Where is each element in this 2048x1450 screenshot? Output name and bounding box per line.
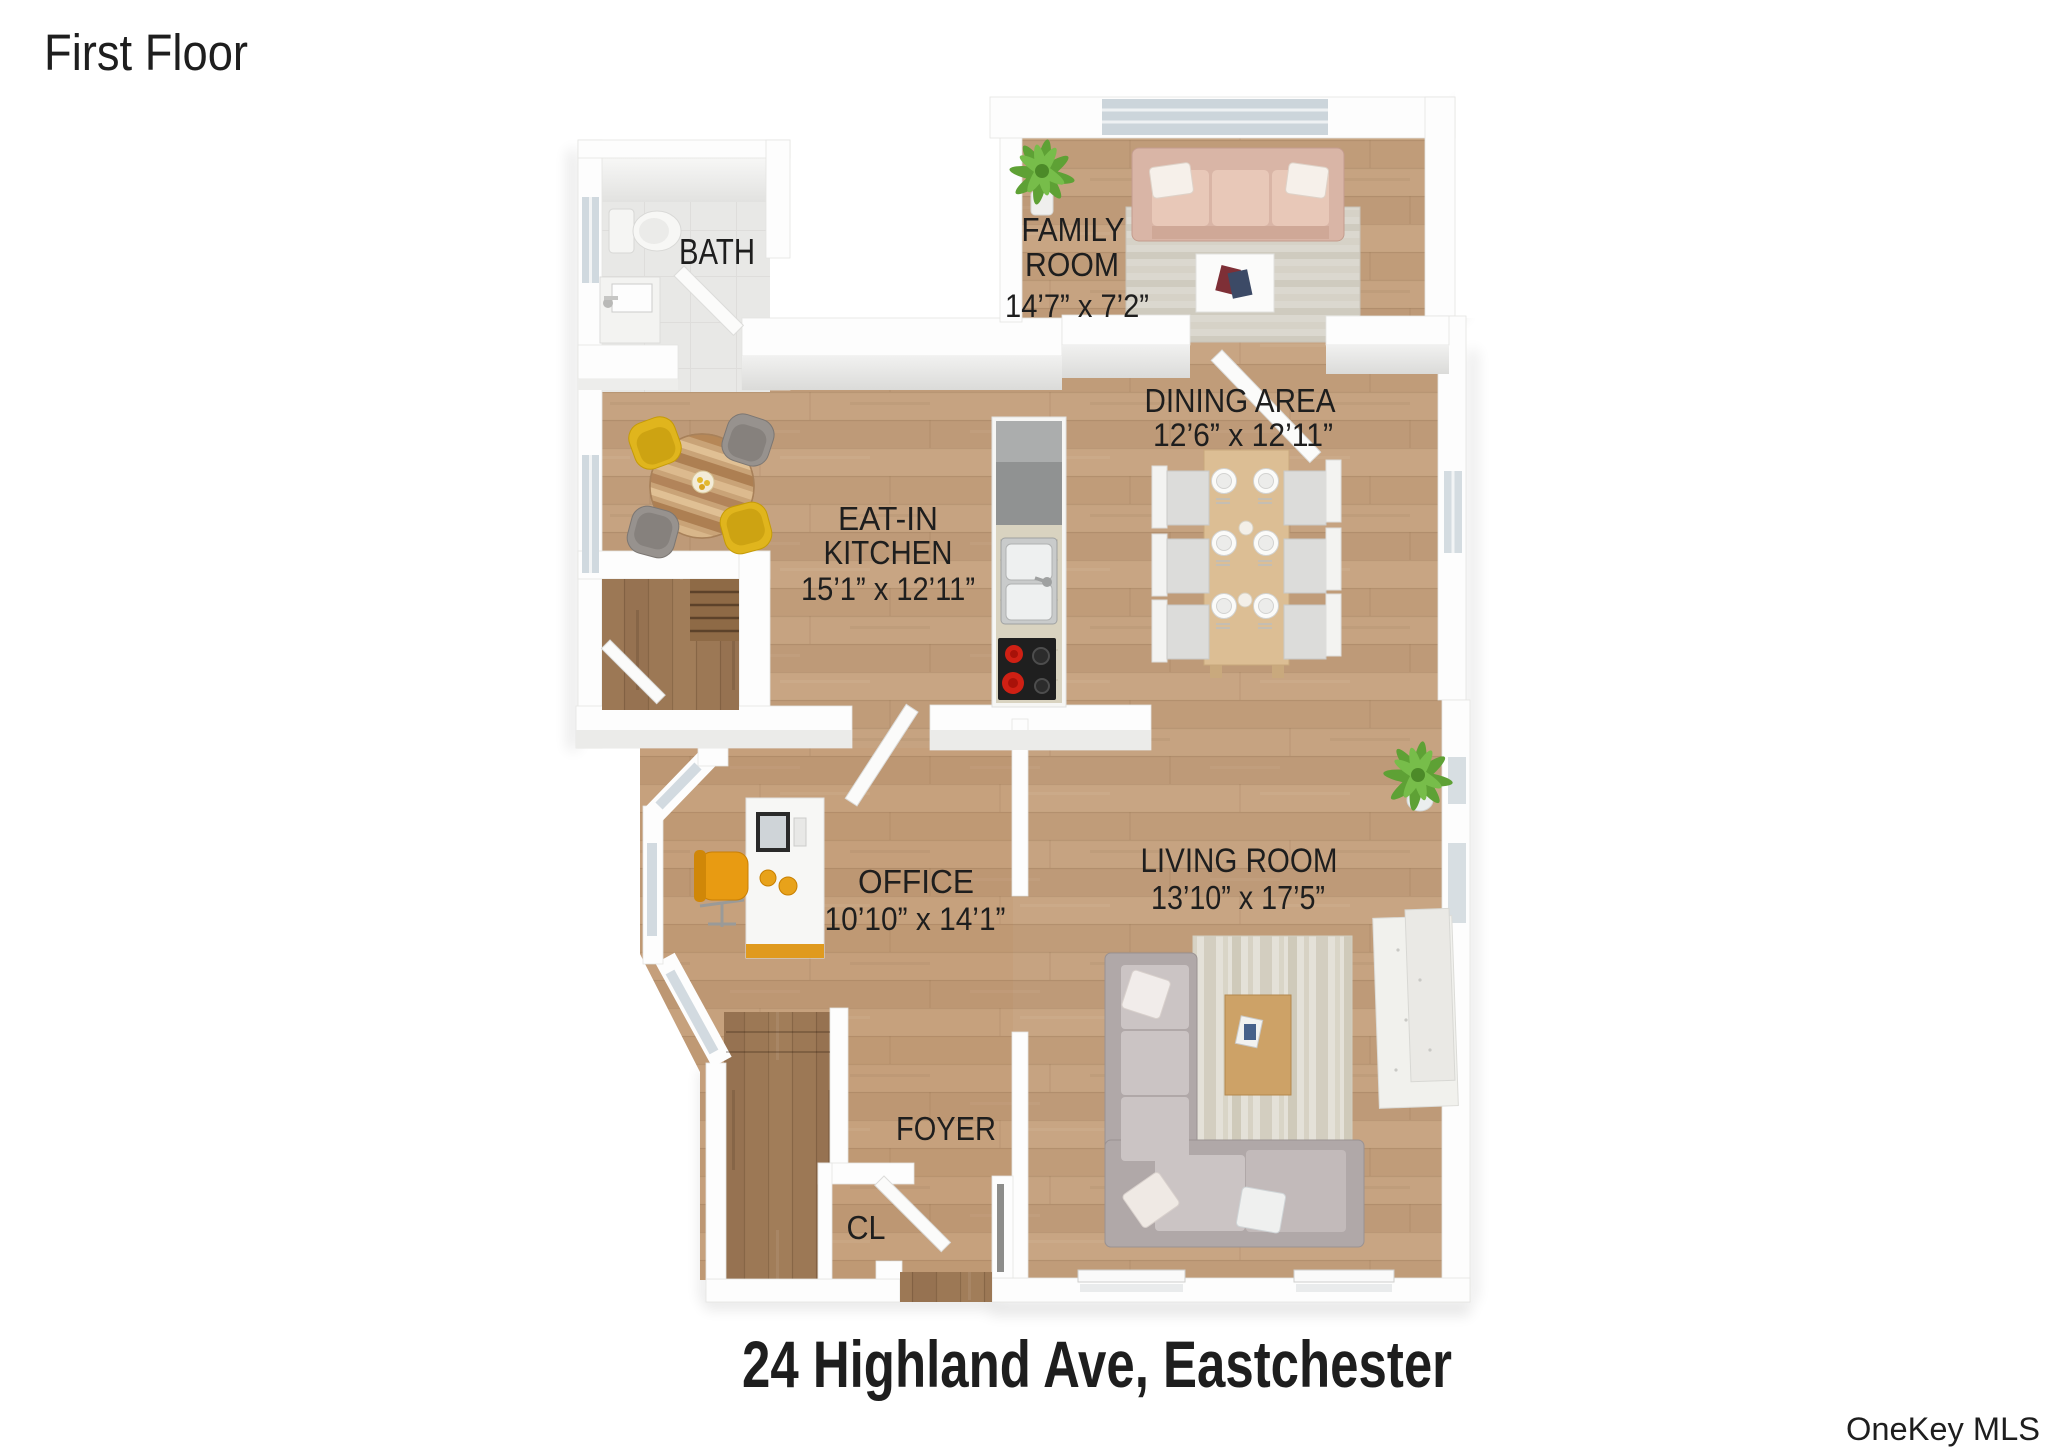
svg-text:KITCHEN: KITCHEN (824, 534, 953, 571)
svg-text:12’6” x 12’11”: 12’6” x 12’11” (1153, 417, 1333, 453)
svg-text:13’10” x 17’5”: 13’10” x 17’5” (1151, 879, 1325, 916)
svg-text:OFFICE: OFFICE (858, 863, 974, 900)
svg-text:First Floor: First Floor (44, 24, 248, 81)
svg-text:FOYER: FOYER (896, 1110, 996, 1147)
svg-text:EAT-IN: EAT-IN (838, 500, 938, 537)
svg-text:14’7” x 7’2”: 14’7” x 7’2” (1005, 288, 1149, 324)
svg-text:15’1” x 12’11”: 15’1” x 12’11” (801, 571, 975, 607)
svg-text:OneKey MLS: OneKey MLS (1846, 1411, 2040, 1447)
svg-text:ROOM: ROOM (1025, 246, 1119, 283)
svg-text:BATH: BATH (679, 231, 755, 272)
svg-text:DINING AREA: DINING AREA (1145, 382, 1336, 419)
svg-text:CL: CL (847, 1209, 886, 1246)
svg-text:10’10” x 14’1”: 10’10” x 14’1” (825, 901, 1006, 937)
svg-text:LIVING ROOM: LIVING ROOM (1141, 842, 1338, 880)
svg-text:24 Highland Ave, Eastchester: 24 Highland Ave, Eastchester (742, 1327, 1452, 1401)
svg-text:FAMILY: FAMILY (1022, 211, 1125, 248)
